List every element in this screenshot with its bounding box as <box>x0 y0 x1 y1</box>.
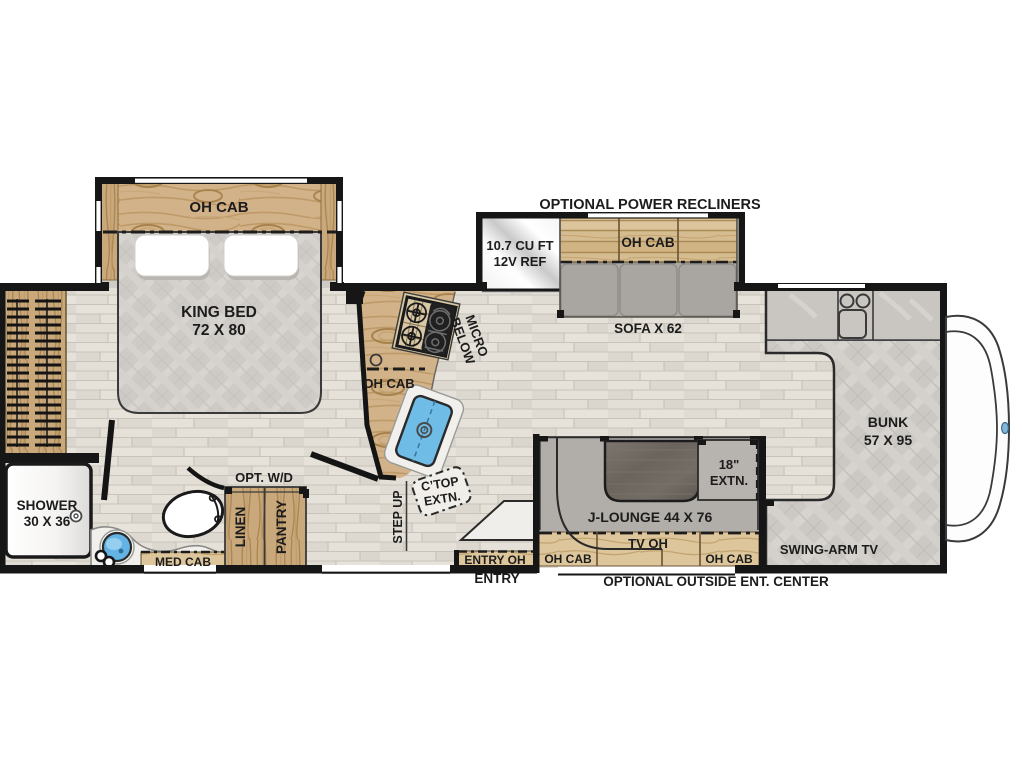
svg-text:SHOWER: SHOWER <box>17 498 78 513</box>
svg-text:PANTRY: PANTRY <box>274 500 289 554</box>
svg-text:BUNK: BUNK <box>868 414 908 430</box>
svg-text:OPTIONAL OUTSIDE ENT. CENTER: OPTIONAL OUTSIDE ENT. CENTER <box>603 574 829 589</box>
svg-text:OPTIONAL POWER RECLINERS: OPTIONAL POWER RECLINERS <box>539 197 761 213</box>
svg-text:LINEN: LINEN <box>233 507 248 548</box>
svg-text:TV OH: TV OH <box>628 536 668 551</box>
svg-text:MED CAB: MED CAB <box>155 555 211 569</box>
svg-text:SOFA X 62: SOFA X 62 <box>614 321 682 336</box>
svg-text:10.7 CU FT: 10.7 CU FT <box>486 238 553 253</box>
svg-text:30 X 36: 30 X 36 <box>24 514 71 529</box>
svg-text:OH CAB: OH CAB <box>621 235 674 250</box>
svg-text:EXTN.: EXTN. <box>710 473 748 488</box>
svg-text:OH CAB: OH CAB <box>189 199 248 216</box>
svg-text:KING BED: KING BED <box>181 304 257 321</box>
svg-text:OH CAB: OH CAB <box>544 552 592 566</box>
svg-text:OH CAB: OH CAB <box>363 376 414 391</box>
svg-text:ENTRY: ENTRY <box>474 571 519 586</box>
svg-text:OH CAB: OH CAB <box>705 552 753 566</box>
svg-text:SWING-ARM TV: SWING-ARM TV <box>780 542 879 557</box>
svg-text:18": 18" <box>719 457 740 472</box>
svg-text:OPT. W/D: OPT. W/D <box>235 470 293 485</box>
svg-text:72 X 80: 72 X 80 <box>192 322 245 339</box>
svg-text:12V REF: 12V REF <box>494 254 547 269</box>
svg-text:STEP UP: STEP UP <box>391 490 405 543</box>
svg-text:57 X 95: 57 X 95 <box>864 432 912 448</box>
svg-text:ENTRY OH: ENTRY OH <box>464 553 525 567</box>
svg-text:J-LOUNGE 44 X 76: J-LOUNGE 44 X 76 <box>588 509 713 525</box>
